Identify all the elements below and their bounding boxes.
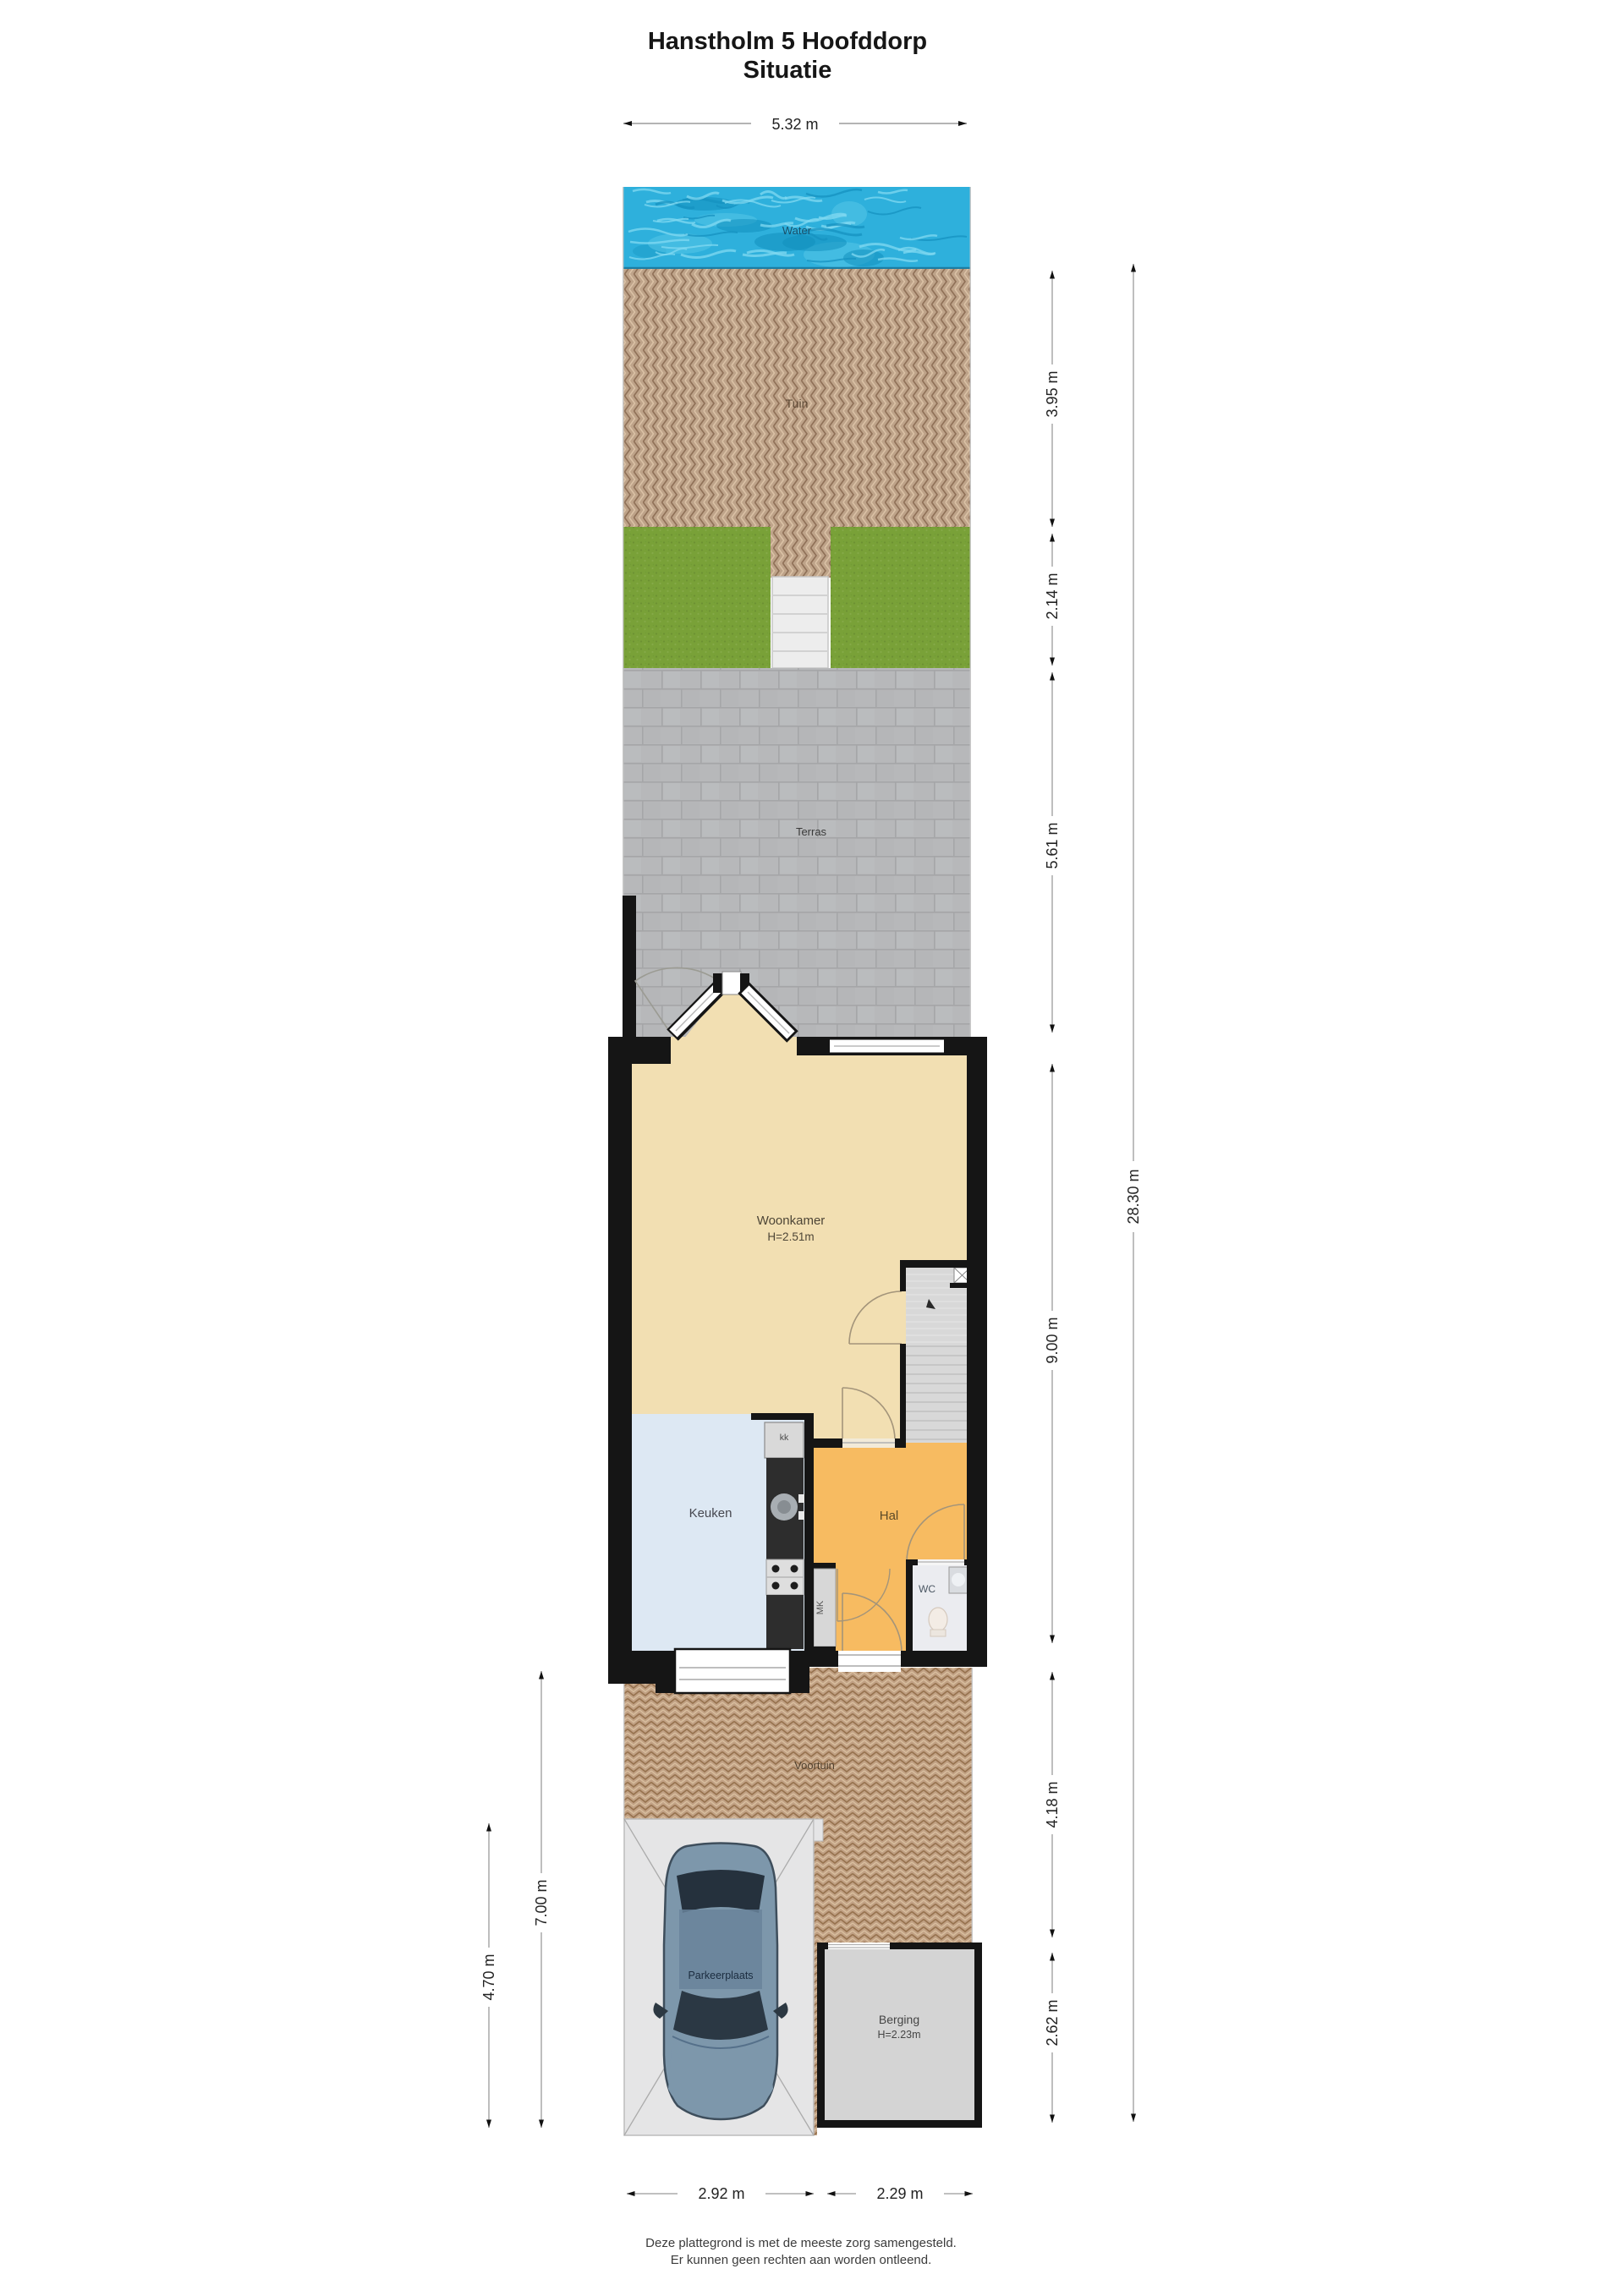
svg-text:2.29 m: 2.29 m [876, 2185, 923, 2202]
svg-text:Water: Water [782, 224, 812, 237]
svg-text:Woonkamer: Woonkamer [757, 1214, 826, 1228]
svg-text:Hanstholm 5 Hoofddorp: Hanstholm 5 Hoofddorp [648, 28, 927, 55]
svg-text:Voortuin: Voortuin [794, 1759, 835, 1772]
svg-text:MK: MK [815, 1600, 826, 1614]
svg-text:Situatie: Situatie [743, 57, 832, 84]
svg-text:2.92 m: 2.92 m [698, 2185, 744, 2202]
svg-text:Deze plattegrond is met de mee: Deze plattegrond is met de meeste zorg s… [645, 2236, 957, 2250]
svg-text:2.14 m: 2.14 m [1044, 573, 1061, 619]
svg-text:Hal: Hal [880, 1509, 899, 1523]
svg-text:H=2.51m: H=2.51m [767, 1230, 814, 1243]
svg-text:4.70 m: 4.70 m [480, 1954, 497, 2000]
svg-text:4.18 m: 4.18 m [1044, 1781, 1061, 1827]
svg-text:Parkeerplaats: Parkeerplaats [688, 1970, 753, 1981]
svg-text:Berging: Berging [879, 2013, 919, 2026]
svg-text:Terras: Terras [796, 825, 827, 838]
svg-text:H=2.23m: H=2.23m [877, 2029, 920, 2041]
svg-text:2.62 m: 2.62 m [1044, 1999, 1061, 2046]
svg-text:kk: kk [780, 1433, 789, 1443]
svg-text:5.61 m: 5.61 m [1044, 822, 1061, 869]
svg-text:7.00 m: 7.00 m [533, 1879, 550, 1926]
svg-text:28.30 m: 28.30 m [1125, 1169, 1142, 1224]
svg-text:Keuken: Keuken [689, 1506, 732, 1521]
svg-text:9.00 m: 9.00 m [1044, 1317, 1061, 1363]
svg-text:WC: WC [919, 1583, 935, 1595]
svg-text:3.95 m: 3.95 m [1044, 370, 1061, 417]
svg-text:Tuin: Tuin [786, 397, 809, 410]
svg-text:5.32 m: 5.32 m [771, 116, 818, 133]
svg-text:Er kunnen geen rechten aan wor: Er kunnen geen rechten aan worden ontlee… [671, 2253, 932, 2267]
